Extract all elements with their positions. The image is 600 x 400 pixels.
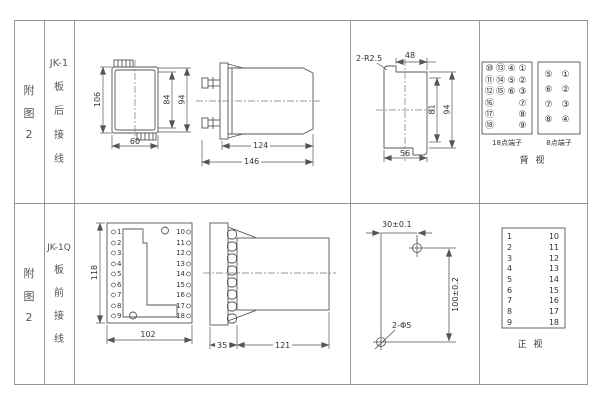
table-number: 11 — [545, 243, 559, 252]
dim-48: 48 — [403, 51, 417, 60]
wiring-char: 线 — [54, 150, 64, 165]
dim-94: 94 — [178, 94, 187, 104]
wiring-char: 接 — [54, 126, 64, 141]
pin-number: 16 — [171, 291, 185, 299]
table-number: 15 — [545, 286, 559, 295]
pin-number: 18 — [171, 312, 185, 320]
terminal-18: ⑪ — [484, 76, 495, 86]
figure-label-char: 图 — [24, 105, 35, 121]
dim-102: 102 — [139, 330, 157, 339]
front-view-label: 正 视 — [503, 337, 559, 350]
terminal-18: ⑯ — [484, 99, 495, 109]
pin-number: 13 — [171, 260, 185, 268]
pin-number: 6 — [117, 281, 121, 289]
table-number: 17 — [545, 307, 559, 316]
dim-35: 35 — [215, 341, 229, 350]
jk1q-drill-drawing — [366, 233, 456, 350]
terminal-18: ③ — [517, 87, 528, 97]
pin-number: 14 — [171, 270, 185, 278]
table-number: 7 — [507, 296, 512, 305]
rear-view-label: 背 视 — [505, 153, 561, 166]
pin-number: 3 — [117, 249, 121, 257]
model-name: JK-1 — [50, 58, 68, 69]
figure-label-char: 2 — [26, 311, 33, 324]
figure-label-bottom: 附 图 2 — [14, 203, 44, 385]
wiring-char: 板 — [54, 261, 64, 276]
pin-number: 17 — [171, 302, 185, 310]
pin-number: 7 — [117, 291, 121, 299]
terminal-18: ⑨ — [517, 121, 528, 131]
table-number: 16 — [545, 296, 559, 305]
terminal-18: ⑫ — [484, 87, 495, 97]
table-number: 3 — [507, 254, 512, 263]
terminal-18: ⑥ — [506, 87, 517, 97]
dim-81: 81 — [428, 104, 437, 114]
dim-146: 146 — [242, 157, 261, 166]
terminal-18-label: 18点端子 — [479, 138, 535, 148]
terminal-18: ⑱ — [484, 121, 495, 131]
wiring-char: 线 — [54, 330, 64, 345]
jk1q-side-drawing — [203, 223, 336, 349]
terminal-8: ⑧ — [543, 115, 554, 125]
wiring-char: 前 — [54, 284, 64, 299]
terminal-18: ⑭ — [495, 76, 506, 86]
terminal-8: ⑦ — [543, 100, 554, 110]
wiring-char: 后 — [54, 102, 64, 117]
terminal-18: ② — [517, 76, 528, 86]
pin-number: 9 — [117, 312, 121, 320]
wiring-char: 接 — [54, 307, 64, 322]
dim-60: 60 — [128, 137, 142, 146]
terminal-8: ④ — [560, 115, 571, 125]
terminal-18: ① — [517, 64, 528, 74]
terminal-18: ⑧ — [517, 110, 528, 120]
relay-dimension-sheet: 附 图 2 JK-1 板 后 接 线 附 图 2 JK-1Q 板 前 接 线 1… — [0, 0, 600, 400]
pin-number: 2 — [117, 239, 121, 247]
terminal-8: ③ — [560, 100, 571, 110]
dim-84: 84 — [163, 94, 172, 104]
table-number: 12 — [545, 254, 559, 263]
dim-121: 121 — [273, 341, 292, 350]
terminal-18: ⑰ — [484, 110, 495, 120]
model-name: JK-1Q — [47, 243, 71, 253]
table-number: 5 — [507, 275, 512, 284]
terminal-18: ⑮ — [495, 87, 506, 97]
table-number: 14 — [545, 275, 559, 284]
pin-number: 12 — [171, 249, 185, 257]
dim-30-tol: 30±0.1 — [382, 220, 412, 229]
terminal-8: ① — [560, 70, 571, 80]
table-number: 9 — [507, 318, 512, 327]
table-number: 8 — [507, 307, 512, 316]
terminal-18: ⑤ — [506, 76, 517, 86]
terminal-18: ⑦ — [517, 99, 528, 109]
pin-number: 10 — [171, 228, 185, 236]
pin-number: 15 — [171, 281, 185, 289]
pin-number: 11 — [171, 239, 185, 247]
table-number: 2 — [507, 243, 512, 252]
terminal-8: ⑥ — [543, 85, 554, 95]
dim-56: 56 — [398, 149, 412, 158]
terminal-18: ④ — [506, 64, 517, 74]
dim-118: 118 — [90, 265, 99, 280]
callout-2-r2.5: 2-R2.5 — [356, 54, 382, 63]
pin-number: 1 — [117, 228, 121, 236]
figure-label-char: 2 — [26, 128, 33, 141]
terminal-18: ⑩ — [484, 64, 495, 74]
terminal-8: ② — [560, 85, 571, 95]
dim-94-cutout: 94 — [443, 104, 452, 114]
dim-124: 124 — [251, 141, 270, 150]
pin-number: 8 — [117, 302, 121, 310]
terminal-18: ⑬ — [495, 64, 506, 74]
table-number: 4 — [507, 264, 512, 273]
pin-number: 4 — [117, 260, 121, 268]
table-number: 13 — [545, 264, 559, 273]
dim-106: 106 — [93, 92, 102, 107]
table-number: 6 — [507, 286, 512, 295]
model-wiring-label-bottom: JK-1Q 板 前 接 线 — [44, 203, 74, 385]
table-number: 1 — [507, 232, 512, 241]
dim-100-tol: 100±0.2 — [451, 277, 460, 312]
table-number: 18 — [545, 318, 559, 327]
figure-label-char: 附 — [24, 265, 35, 281]
callout-2-phi5: 2-Φ5 — [392, 321, 411, 330]
figure-label-top: 附 图 2 — [14, 20, 44, 203]
table-number: 10 — [545, 232, 559, 241]
figure-label-char: 附 — [24, 82, 35, 98]
jk1-side-drawing — [196, 63, 320, 166]
model-wiring-label-top: JK-1 板 后 接 线 — [44, 20, 74, 203]
pin-number: 5 — [117, 270, 121, 278]
terminal-8: ⑤ — [543, 70, 554, 80]
terminal-8-label: 8点端子 — [534, 138, 584, 148]
wiring-char: 板 — [54, 78, 64, 93]
figure-label-char: 图 — [24, 288, 35, 304]
